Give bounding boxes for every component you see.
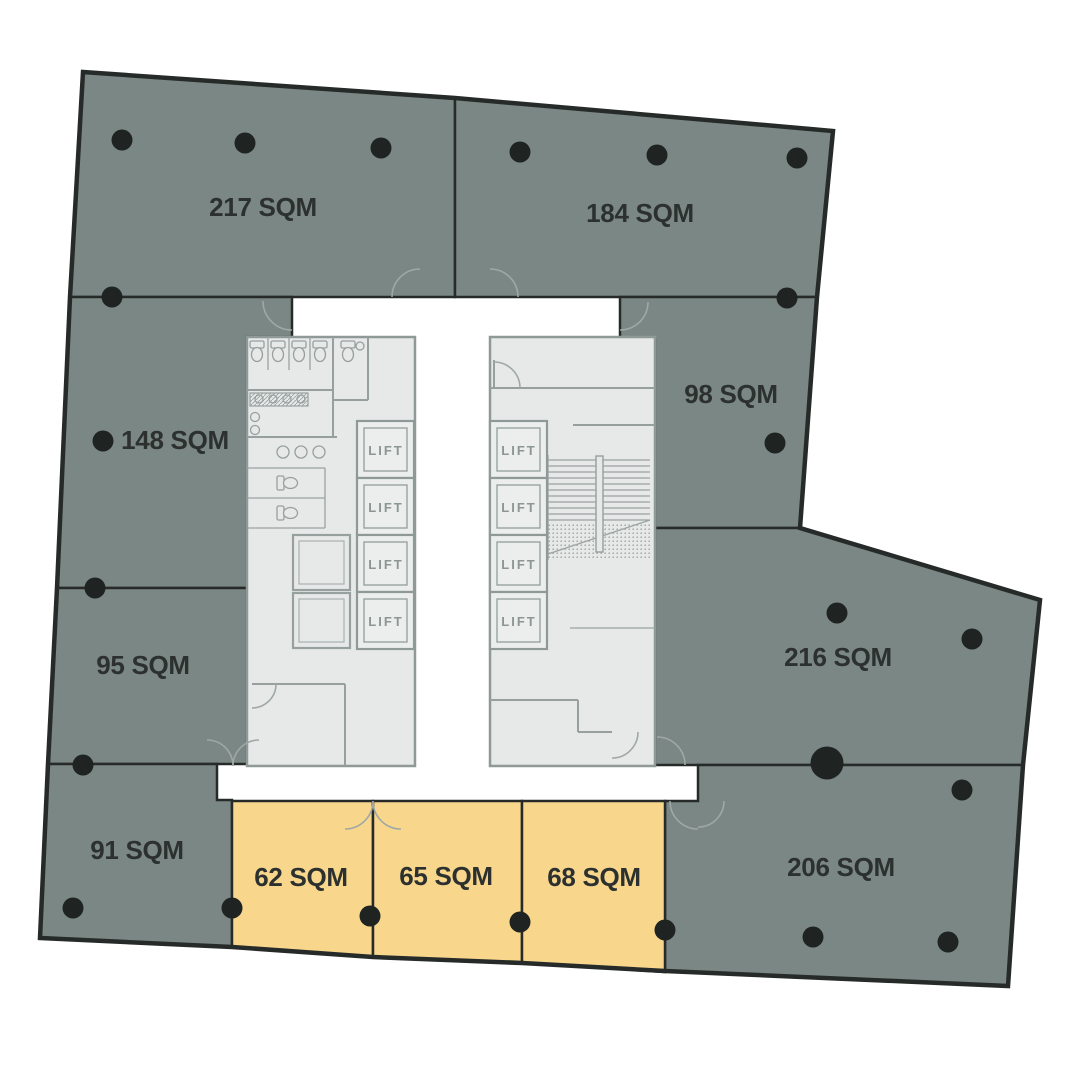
column-dot xyxy=(93,431,114,452)
column-dot xyxy=(85,578,106,599)
wc-icon xyxy=(250,341,264,362)
lift-label: LIFT xyxy=(501,443,536,458)
wc-icon xyxy=(313,341,327,362)
lift-shaft: LIFT xyxy=(357,478,414,535)
unit-label-68: 68 SQM xyxy=(547,862,641,892)
column-dot xyxy=(63,898,84,919)
lift-label: LIFT xyxy=(368,614,403,629)
unit-217[interactable] xyxy=(70,72,455,297)
unit-label-98: 98 SQM xyxy=(684,379,778,409)
unit-label-217: 217 SQM xyxy=(209,192,317,222)
unit-label-216: 216 SQM xyxy=(784,642,892,672)
wc-icon xyxy=(292,341,306,362)
column-dot xyxy=(952,780,973,801)
lift-bank: LIFT LIFT LIFT LIFT LIFT LIFT LIFT LIFT xyxy=(357,421,547,649)
column-dot xyxy=(647,145,668,166)
column-dot xyxy=(102,287,123,308)
unit-label-95: 95 SQM xyxy=(96,650,190,680)
unit-label-91: 91 SQM xyxy=(90,835,184,865)
lift-shaft: LIFT xyxy=(490,421,547,478)
column-dot xyxy=(371,138,392,159)
lift-label: LIFT xyxy=(368,557,403,572)
unit-label-184: 184 SQM xyxy=(586,198,694,228)
column-dot xyxy=(803,927,824,948)
unit-label-206: 206 SQM xyxy=(787,852,895,882)
lift-label: LIFT xyxy=(501,614,536,629)
column-dot xyxy=(73,755,94,776)
wc-icon xyxy=(271,341,285,362)
unit-label-62: 62 SQM xyxy=(254,862,348,892)
column-dot xyxy=(787,148,808,169)
unit-label-148: 148 SQM xyxy=(121,425,229,455)
column-dot xyxy=(235,133,256,154)
stair-rail xyxy=(596,456,603,552)
lift-label: LIFT xyxy=(501,557,536,572)
column-dot xyxy=(360,906,381,927)
column-dot xyxy=(962,629,983,650)
wc-icon xyxy=(277,476,298,490)
column-dot xyxy=(222,898,243,919)
column-dot xyxy=(112,130,133,151)
column-dot xyxy=(811,747,844,780)
lift-shaft: LIFT xyxy=(357,592,414,649)
column-dot xyxy=(777,288,798,309)
lift-shaft: LIFT xyxy=(357,421,414,478)
column-dot xyxy=(510,142,531,163)
lift-label: LIFT xyxy=(368,500,403,515)
lift-shaft: LIFT xyxy=(490,592,547,649)
column-dot xyxy=(510,912,531,933)
lift-label: LIFT xyxy=(501,500,536,515)
column-dot xyxy=(938,932,959,953)
lift-shaft: LIFT xyxy=(490,478,547,535)
floor-plan: LIFT LIFT LIFT LIFT LIFT LIFT LIFT LIFT xyxy=(0,0,1080,1080)
unit-label-65: 65 SQM xyxy=(399,861,493,891)
column-dot xyxy=(765,433,786,454)
lift-shaft: LIFT xyxy=(357,535,414,592)
floor-plan-svg: LIFT LIFT LIFT LIFT LIFT LIFT LIFT LIFT xyxy=(0,0,1080,1080)
wc-icon xyxy=(341,341,355,362)
core: LIFT LIFT LIFT LIFT LIFT LIFT LIFT LIFT xyxy=(207,269,724,829)
wc-icon xyxy=(277,506,298,520)
lift-shaft: LIFT xyxy=(490,535,547,592)
column-dot xyxy=(827,603,848,624)
lift-label: LIFT xyxy=(368,443,403,458)
column-dot xyxy=(655,920,676,941)
